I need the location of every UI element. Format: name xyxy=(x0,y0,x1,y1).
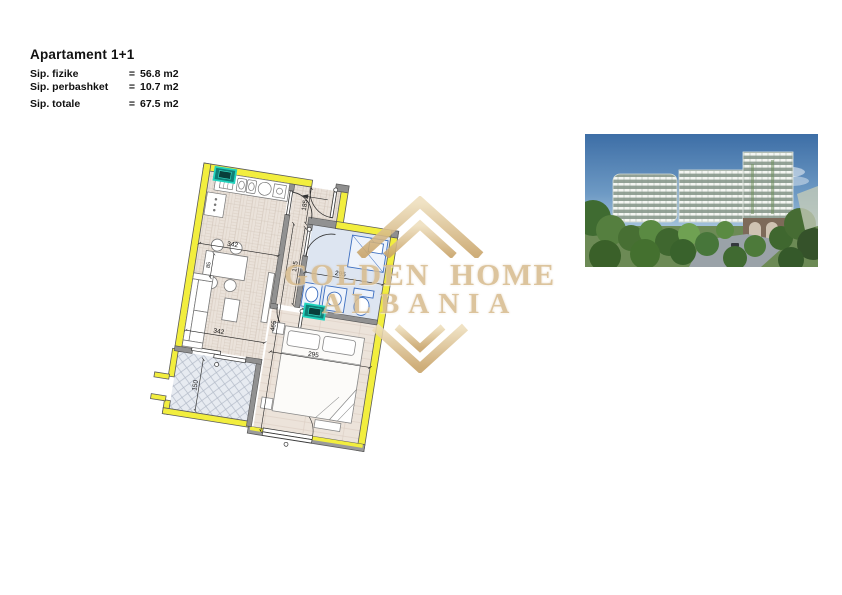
spec-value: 67.5 m2 xyxy=(140,98,179,111)
equals-sign: = xyxy=(124,68,140,81)
spec-label: Sip. fizike xyxy=(30,68,124,81)
building-left xyxy=(613,174,677,222)
building-render-photo xyxy=(585,134,818,267)
spec-label: Sip. totale xyxy=(30,98,124,111)
dim-label: 85 xyxy=(206,262,213,269)
spec-row: Sip. totale = 67.5 m2 xyxy=(30,98,179,111)
spec-value: 56.8 m2 xyxy=(140,68,179,81)
building-right xyxy=(743,152,793,222)
apartment-spec-block: Apartament 1+1 Sip. fizike = 56.8 m2 Sip… xyxy=(30,47,179,111)
building-middle xyxy=(679,170,743,222)
spec-rows: Sip. fizike = 56.8 m2 Sip. perbashket = … xyxy=(30,68,179,111)
equals-sign: = xyxy=(124,81,140,94)
spec-label: Sip. perbashket xyxy=(30,81,124,94)
equals-sign: = xyxy=(124,98,140,111)
spec-row: Sip. fizike = 56.8 m2 xyxy=(30,68,179,81)
spec-row: Sip. perbashket = 10.7 m2 xyxy=(30,81,179,94)
nightstand xyxy=(260,397,273,410)
page-title: Apartament 1+1 xyxy=(30,47,179,62)
floor-plan: 342 342 465 185 105 295 295 150 85 xyxy=(148,142,448,482)
page: Apartament 1+1 Sip. fizike = 56.8 m2 Sip… xyxy=(0,0,842,595)
coffee-table xyxy=(222,298,240,322)
spec-value: 10.7 m2 xyxy=(140,81,179,94)
